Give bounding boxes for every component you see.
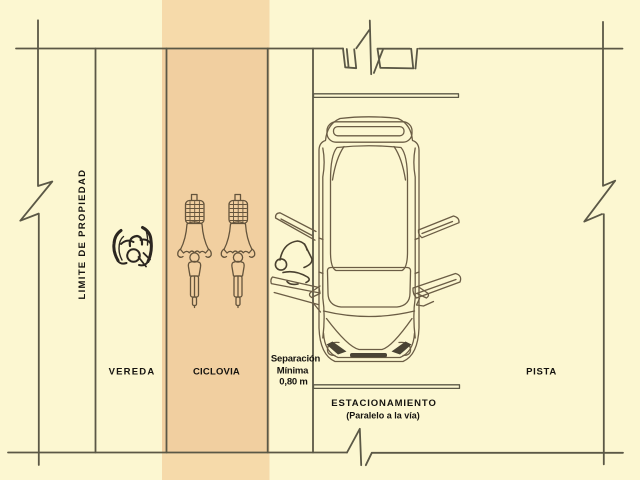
svg-text:(Paralelo a la vía): (Paralelo a la vía) — [346, 411, 420, 421]
svg-text:PISTA: PISTA — [526, 367, 557, 378]
svg-text:0,80 m: 0,80 m — [279, 376, 307, 387]
svg-text:Mínima: Mínima — [277, 365, 309, 376]
svg-text:CICLOVIA: CICLOVIA — [193, 367, 240, 378]
svg-text:LIMITE DE PROPIEDAD: LIMITE DE PROPIEDAD — [77, 169, 88, 300]
svg-text:ESTACIONAMIENTO: ESTACIONAMIENTO — [331, 398, 437, 409]
svg-text:VEREDA: VEREDA — [109, 367, 156, 378]
svg-text:Separación: Separación — [271, 354, 321, 365]
